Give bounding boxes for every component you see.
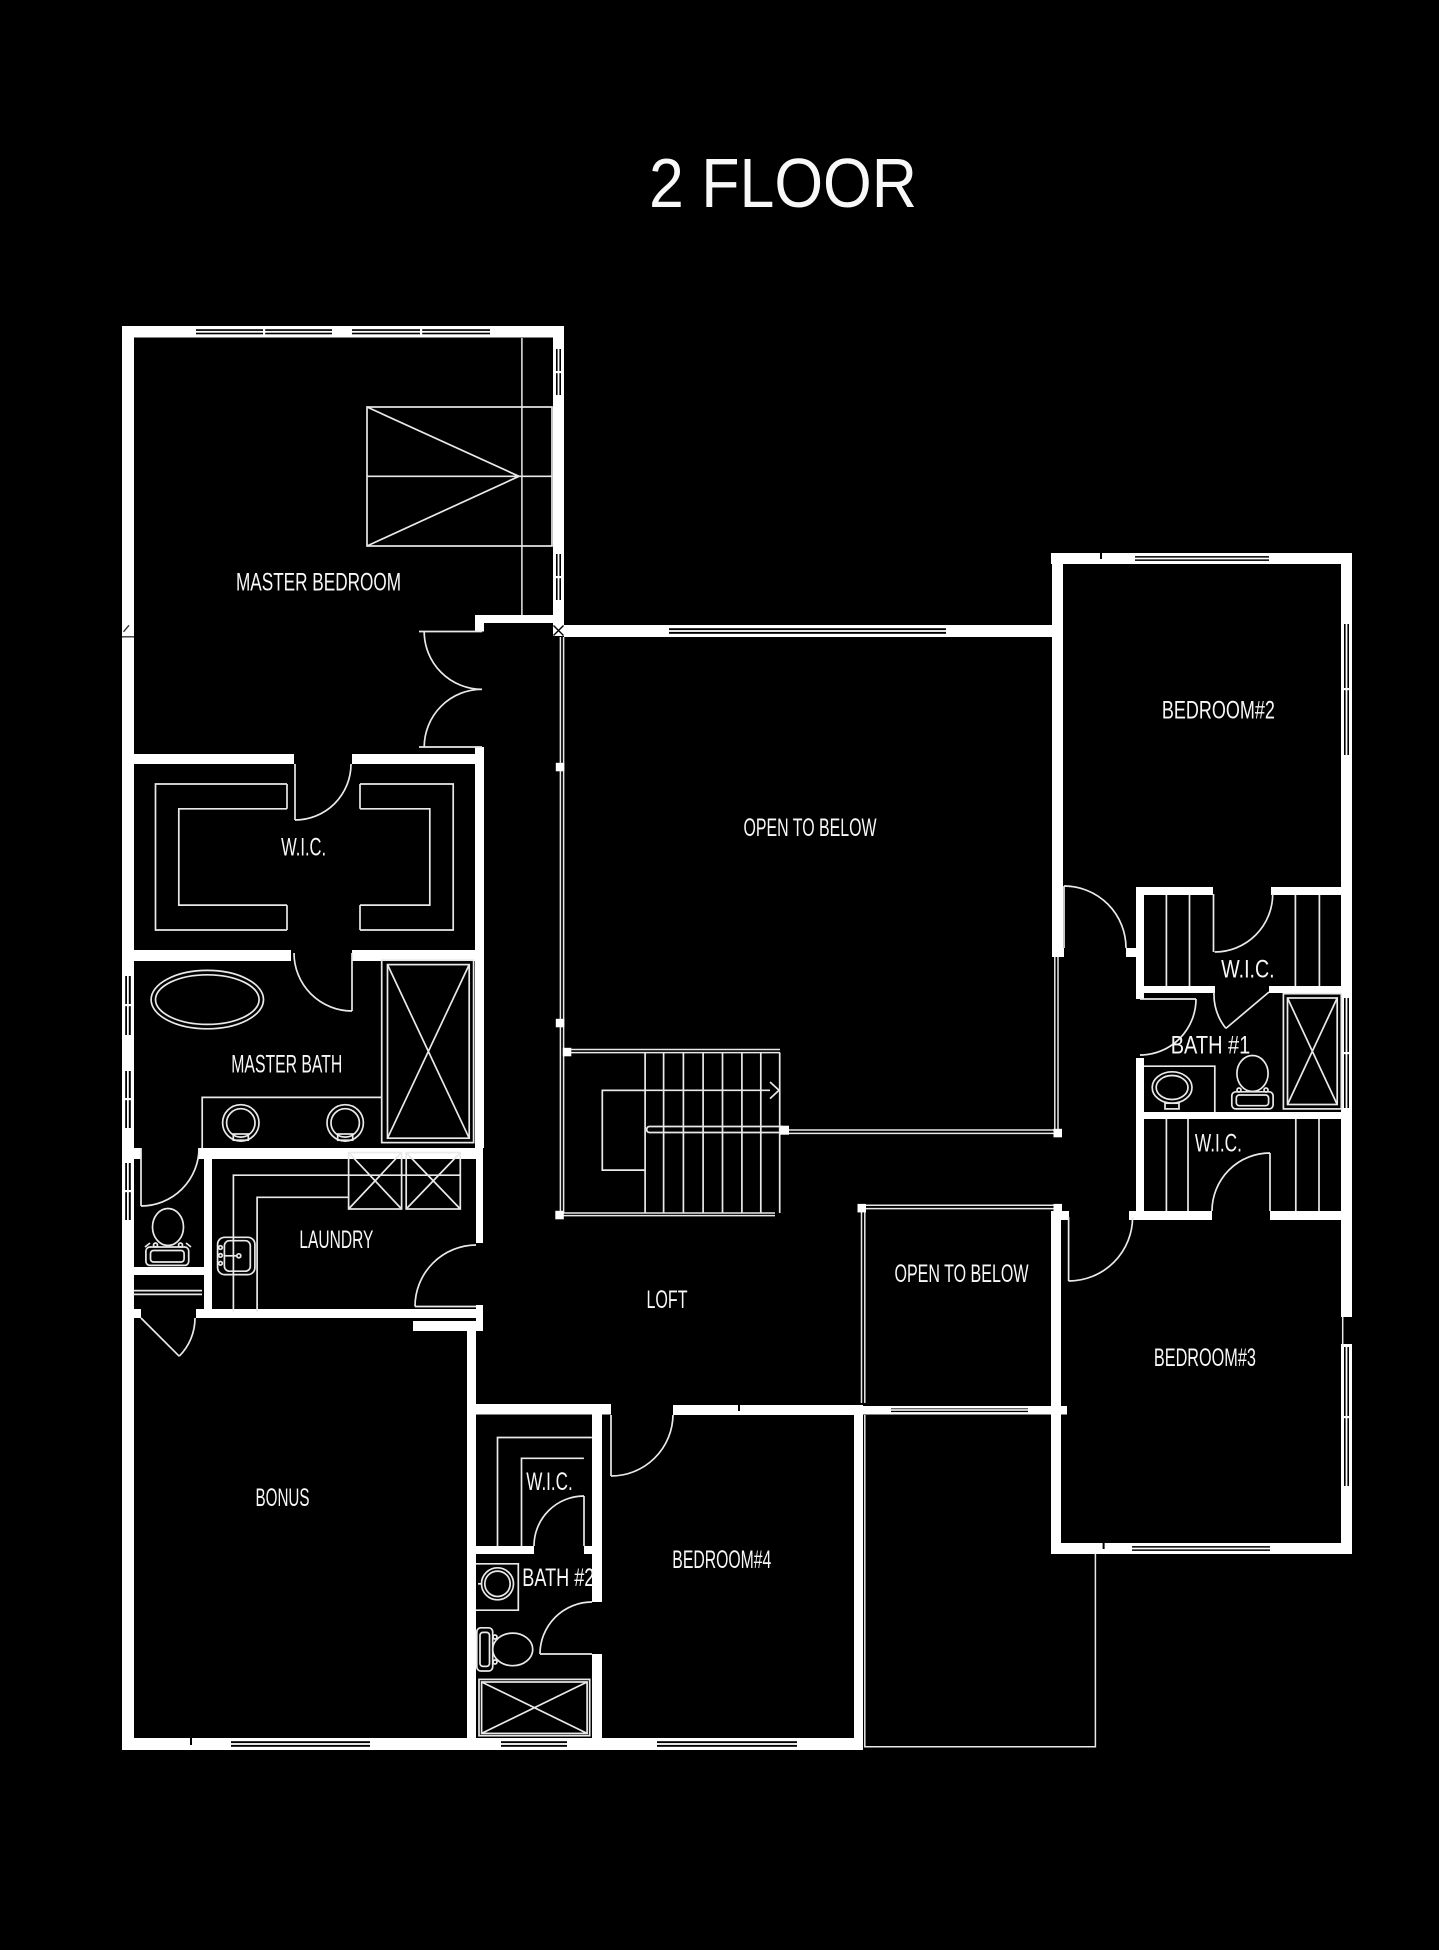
- svg-text:LOFT: LOFT: [647, 1286, 688, 1314]
- svg-text:BEDROOM#2: BEDROOM#2: [1162, 696, 1275, 724]
- svg-text:BATH #1: BATH #1: [1171, 1031, 1251, 1059]
- svg-text:BEDROOM#4: BEDROOM#4: [672, 1546, 771, 1574]
- svg-text:W.I.C.: W.I.C.: [526, 1468, 572, 1496]
- svg-text:BATH #2: BATH #2: [522, 1564, 594, 1592]
- svg-text:LAUNDRY: LAUNDRY: [299, 1226, 373, 1254]
- svg-text:OPEN TO BELOW: OPEN TO BELOW: [744, 814, 877, 842]
- svg-text:BEDROOM#3: BEDROOM#3: [1154, 1344, 1256, 1372]
- svg-text:W.I.C.: W.I.C.: [1221, 956, 1275, 984]
- svg-text:BONUS: BONUS: [256, 1484, 310, 1512]
- svg-text:MASTER BATH: MASTER BATH: [231, 1051, 342, 1079]
- svg-text:MASTER BEDROOM: MASTER BEDROOM: [236, 569, 401, 597]
- svg-text:OPEN TO BELOW: OPEN TO BELOW: [895, 1260, 1029, 1288]
- svg-text:W.I.C.: W.I.C.: [1195, 1129, 1242, 1157]
- svg-text:2 FLOOR: 2 FLOOR: [649, 144, 917, 222]
- svg-text:W.I.C.: W.I.C.: [281, 834, 326, 862]
